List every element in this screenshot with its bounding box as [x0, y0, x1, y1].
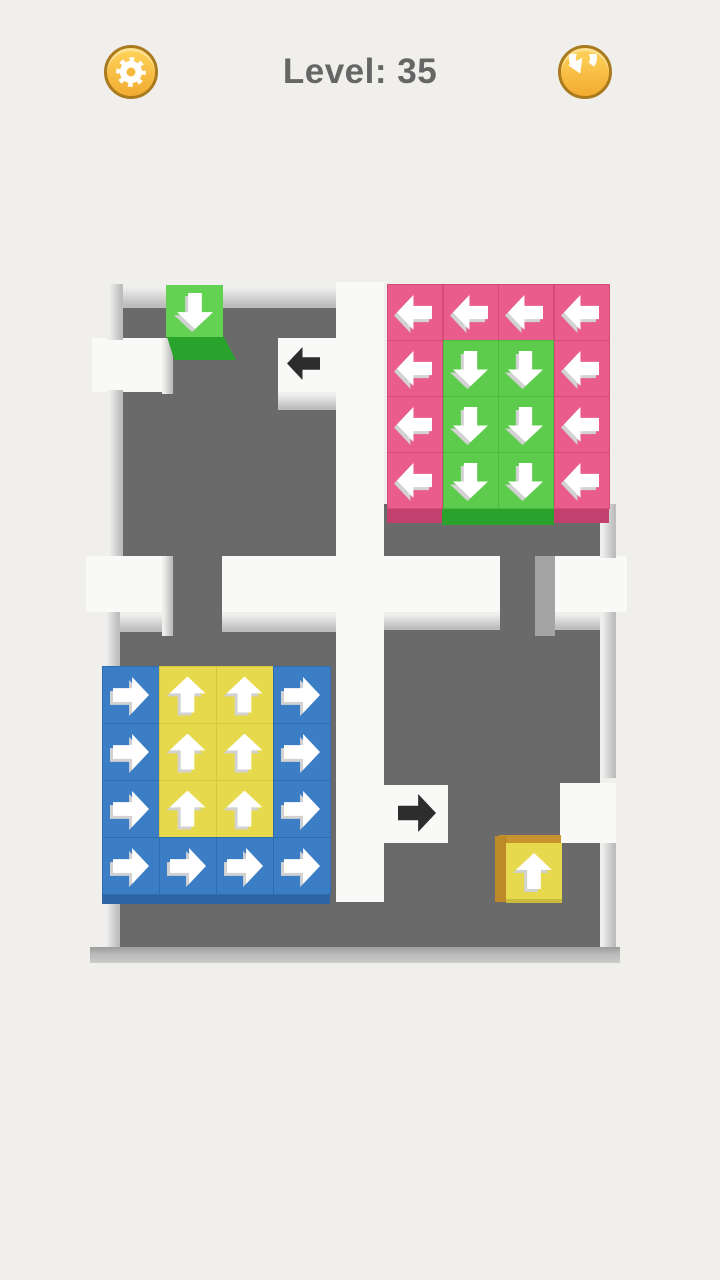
arrow-block-green-down[interactable]: [498, 452, 554, 509]
floor-gap: [92, 338, 162, 392]
restart-button[interactable]: [558, 45, 612, 99]
arrow-block-pink-left[interactable]: [554, 340, 610, 397]
arrow-face: [453, 351, 488, 386]
arrow-right-glyph: [113, 734, 149, 770]
arrow-block-yellow-up[interactable]: [159, 780, 217, 838]
arrow-face: [564, 407, 599, 442]
arrow-face: [398, 794, 436, 832]
arrow-right-glyph: [113, 848, 149, 884]
wall: [535, 556, 555, 636]
arrow-left-glyph: [397, 463, 432, 498]
arrow-left-glyph: [397, 295, 432, 330]
wall: [600, 843, 616, 947]
arrow-block-blue-right[interactable]: [273, 666, 331, 724]
floor-gap: [555, 556, 627, 612]
game-board: [0, 0, 720, 1280]
floor-region: [173, 556, 222, 636]
floor-gap: [560, 783, 616, 843]
arrow-block-blue-right[interactable]: [273, 780, 331, 838]
floor-gap: [222, 556, 336, 612]
arrow-face: [287, 347, 320, 380]
restart-icon: [567, 54, 603, 90]
arrow-block-blue-right[interactable]: [273, 837, 331, 895]
arrow-down-glyph: [508, 463, 543, 498]
arrow-block-yellow-up[interactable]: [159, 723, 217, 781]
arrow-up-glyph: [227, 734, 263, 770]
arrow-face: [564, 351, 599, 386]
floor-arrow-left: [287, 347, 320, 380]
arrow-block-pink-left[interactable]: [554, 284, 610, 341]
arrow-up-glyph: [227, 791, 263, 827]
floor-region: [500, 556, 535, 636]
arrow-down-glyph: [177, 293, 213, 329]
arrow-block-blue-right[interactable]: [273, 723, 331, 781]
arrow-block-blue-right[interactable]: [216, 837, 274, 895]
block-front-face: [442, 508, 554, 525]
block-front-face: [387, 508, 442, 523]
arrow-block-green-down[interactable]: [498, 340, 554, 397]
arrow-block-pink-left[interactable]: [387, 340, 443, 397]
arrow-block-pink-left[interactable]: [554, 396, 610, 453]
arrow-block-blue-right[interactable]: [102, 837, 160, 895]
wall: [90, 947, 620, 963]
arrow-block-green-down[interactable]: [443, 452, 499, 509]
arrow-block-pink-left[interactable]: [443, 284, 499, 341]
arrow-right-glyph: [284, 848, 320, 884]
arrow-left-glyph: [453, 295, 488, 330]
wall: [222, 612, 336, 632]
level-title: Level: 35: [0, 52, 720, 92]
arrow-block-pink-left[interactable]: [387, 452, 443, 509]
arrow-face: [564, 463, 599, 498]
arrow-block-blue-right[interactable]: [102, 666, 160, 724]
floor-region: [336, 902, 384, 947]
arrow-left-glyph: [397, 407, 432, 442]
arrow-left-glyph: [564, 351, 599, 386]
arrow-up-glyph: [170, 791, 206, 827]
arrow-right-glyph: [284, 791, 320, 827]
floor-region: [123, 392, 336, 556]
arrow-right-glyph: [113, 791, 149, 827]
arrow-left-glyph: [564, 295, 599, 330]
arrow-face: [453, 295, 488, 330]
arrow-down-glyph: [453, 407, 488, 442]
arrow-right-glyph: [113, 677, 149, 713]
arrow-block-green-down[interactable]: [443, 396, 499, 453]
arrow-right-glyph: [284, 677, 320, 713]
arrow-block-yellow-up[interactable]: [506, 843, 562, 899]
wall: [384, 612, 500, 630]
arrow-right-glyph: [170, 848, 206, 884]
arrow-block-blue-right[interactable]: [102, 723, 160, 781]
wall: [600, 612, 616, 778]
wall: [107, 390, 123, 556]
arrow-down-glyph: [453, 351, 488, 386]
arrow-face: [453, 407, 488, 442]
arrow-block-pink-left[interactable]: [498, 284, 554, 341]
arrow-face: [564, 295, 599, 330]
arrow-block-pink-left[interactable]: [387, 396, 443, 453]
arrow-block-pink-left[interactable]: [554, 452, 610, 509]
game-screen: Level: 35: [0, 0, 720, 1280]
arrow-right-glyph: [227, 848, 263, 884]
wall: [107, 284, 123, 340]
floor-region: [123, 306, 336, 340]
floor-arrow-right: [398, 794, 436, 832]
arrow-face: [177, 293, 213, 329]
arrow-block-blue-right[interactable]: [159, 837, 217, 895]
block-front-face: [102, 894, 330, 904]
arrow-block-green-down[interactable]: [443, 340, 499, 397]
block-front-face: [554, 508, 609, 523]
floor-gap: [384, 556, 500, 612]
arrow-block-green-down[interactable]: [498, 396, 554, 453]
wall: [555, 612, 600, 630]
arrow-left-glyph: [508, 295, 543, 330]
arrow-left-glyph: [397, 351, 432, 386]
arrow-block-green-down[interactable]: [166, 285, 223, 337]
header-bar: Level: 35: [0, 0, 720, 120]
floor-gap: [86, 556, 162, 612]
arrow-left-glyph: [564, 463, 599, 498]
arrow-block-yellow-up[interactable]: [159, 666, 217, 724]
arrow-face: [453, 463, 488, 498]
arrow-up-glyph: [170, 677, 206, 713]
arrow-right-glyph: [284, 734, 320, 770]
arrow-down-glyph: [508, 407, 543, 442]
arrow-block-pink-left[interactable]: [387, 284, 443, 341]
floor-gap: [336, 282, 384, 902]
arrow-block-blue-right[interactable]: [102, 780, 160, 838]
wall: [162, 556, 173, 636]
arrow-up-glyph: [516, 853, 552, 889]
arrow-down-glyph: [453, 463, 488, 498]
arrow-block-yellow-up[interactable]: [216, 723, 274, 781]
arrow-up-glyph: [227, 677, 263, 713]
wall: [278, 392, 336, 410]
arrow-up-glyph: [170, 734, 206, 770]
arrow-block-yellow-up[interactable]: [216, 666, 274, 724]
arrow-down-glyph: [508, 351, 543, 386]
arrow-left-glyph: [564, 407, 599, 442]
arrow-block-yellow-up[interactable]: [216, 780, 274, 838]
